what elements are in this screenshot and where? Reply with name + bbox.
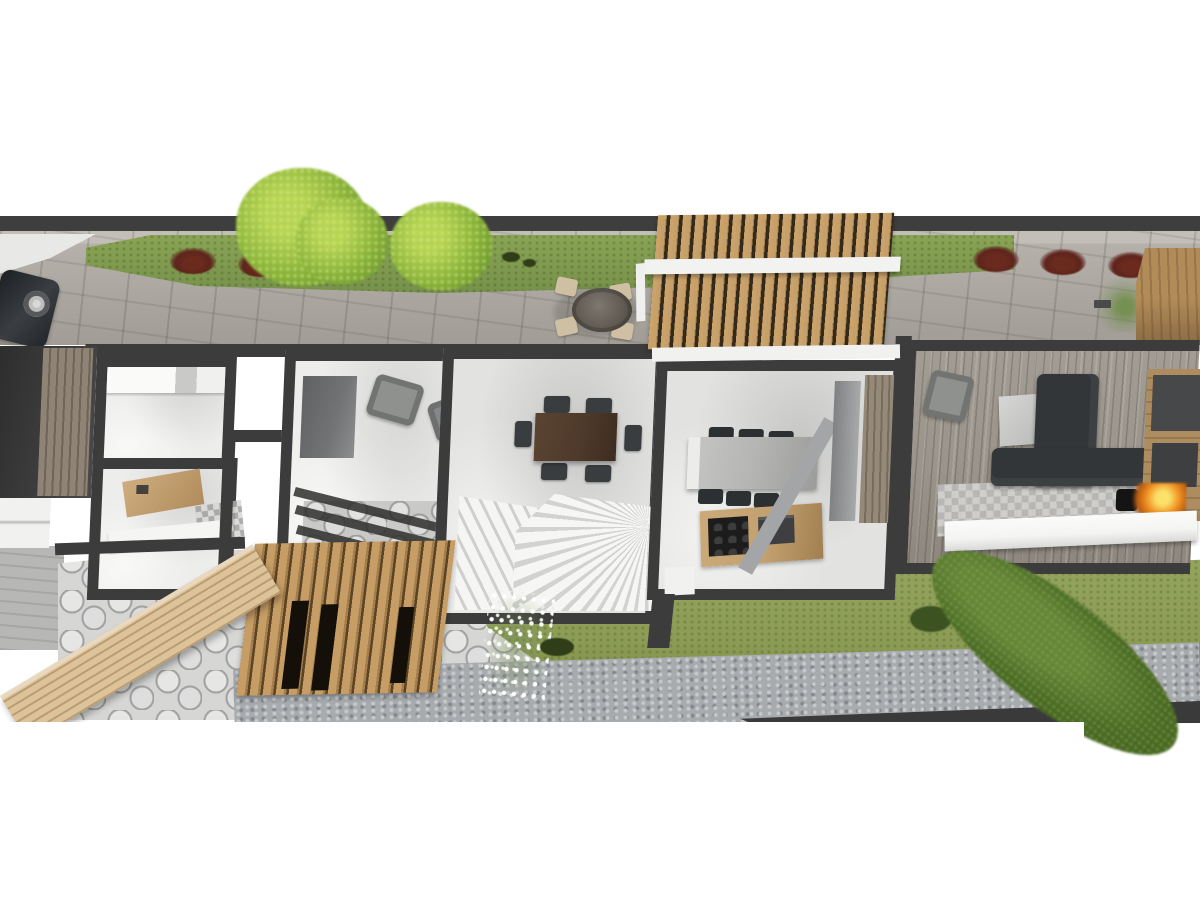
dining-chair (514, 421, 532, 447)
dining-table (534, 413, 618, 461)
grass-tuft (502, 252, 520, 262)
planter-box (1094, 300, 1111, 308)
street-tree (296, 198, 388, 284)
fireplace-flame (1127, 483, 1186, 513)
wood-deck-corner (1136, 248, 1200, 345)
cooktop (708, 516, 749, 557)
front-pergola (648, 213, 895, 349)
armchair (921, 369, 975, 423)
dining-chair (585, 465, 612, 482)
grass-tuft (523, 259, 536, 267)
bottom-margin (0, 722, 1084, 900)
red-bush (1040, 249, 1086, 275)
pergola-post (636, 263, 646, 322)
red-bush (973, 246, 1019, 272)
sink (136, 485, 148, 494)
island-end-cap (686, 437, 700, 489)
garage-wood-door (37, 348, 93, 496)
garage-slab (0, 346, 97, 498)
bar-stool (698, 489, 724, 504)
utility-counter (106, 367, 225, 393)
kitchen (647, 360, 905, 600)
canopy-gap-shadow (311, 604, 339, 690)
bar-stool (726, 491, 752, 506)
dark-tuft (540, 638, 574, 656)
tv-panel (1151, 375, 1200, 431)
white-slabs (0, 498, 51, 548)
dining-chair (624, 425, 642, 451)
road-edge (0, 216, 1200, 231)
fridge (664, 566, 694, 596)
bottom-margin (1084, 760, 1200, 900)
red-bush (170, 248, 216, 274)
tv-panel (1151, 443, 1199, 487)
canopy-gap-shadow (281, 601, 309, 689)
u-staircase (454, 494, 661, 612)
dining-chair (541, 463, 568, 480)
wood-vanity (122, 469, 204, 518)
round-table (572, 288, 632, 332)
floorplan-scene (0, 0, 1200, 900)
pergola-white-beam (644, 257, 901, 275)
gray-wall-panel (300, 376, 357, 458)
living-room (896, 340, 1200, 574)
dining-stair-hall (432, 348, 668, 624)
street-tree (390, 202, 492, 290)
gray-partition (829, 381, 861, 521)
slatted-canopy (236, 540, 455, 695)
outdoor-chair (554, 276, 578, 297)
canopy-gap-shadow (390, 607, 414, 683)
armchair (365, 373, 426, 427)
dining-chair (544, 396, 571, 413)
